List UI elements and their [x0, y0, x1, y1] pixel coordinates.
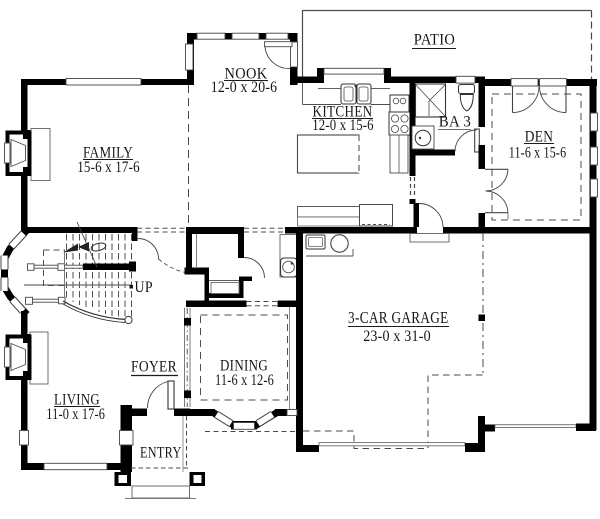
svg-text:11-0 x 17-6: 11-0 x 17-6	[46, 406, 105, 423]
svg-text:DEN: DEN	[525, 129, 554, 146]
svg-text:BA 3: BA 3	[439, 114, 472, 131]
svg-text:11-6 x 12-6: 11-6 x 12-6	[215, 372, 274, 389]
svg-text:23-0 x 31-0: 23-0 x 31-0	[363, 328, 431, 345]
svg-text:FOYER: FOYER	[131, 359, 177, 376]
svg-text:ENTRY: ENTRY	[140, 445, 182, 462]
svg-text:PATIO: PATIO	[414, 32, 456, 49]
svg-text:15-6 x 17-6: 15-6 x 17-6	[77, 159, 140, 176]
svg-text:12-0 x 15-6: 12-0 x 15-6	[312, 117, 374, 134]
svg-text:UP: UP	[135, 279, 154, 296]
svg-text:12-0 x 20-6: 12-0 x 20-6	[211, 79, 278, 96]
svg-text:3-CAR GARAGE: 3-CAR GARAGE	[348, 308, 449, 327]
svg-text:11-6 x 15-6: 11-6 x 15-6	[509, 145, 567, 162]
